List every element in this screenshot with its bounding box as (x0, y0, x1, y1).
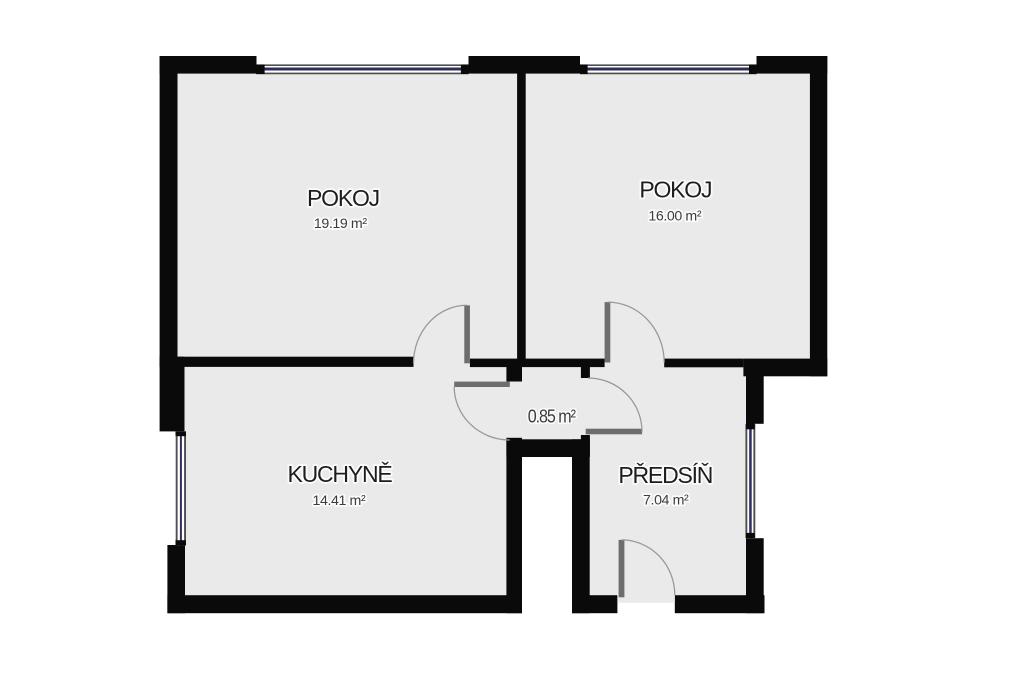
svg-text:19.19 m²: 19.19 m² (314, 216, 367, 232)
svg-text:KUCHYNĚ: KUCHYNĚ (287, 461, 392, 487)
svg-text:POKOJ: POKOJ (639, 176, 711, 202)
svg-text:16.00 m²: 16.00 m² (648, 209, 701, 225)
svg-text:14.41 m²: 14.41 m² (313, 493, 366, 509)
svg-text:7.04 m²: 7.04 m² (643, 493, 689, 509)
svg-text:PŘEDSÍŇ: PŘEDSÍŇ (618, 462, 712, 488)
svg-text:0.85 m²: 0.85 m² (528, 405, 576, 426)
svg-text:POKOJ: POKOJ (307, 185, 379, 211)
